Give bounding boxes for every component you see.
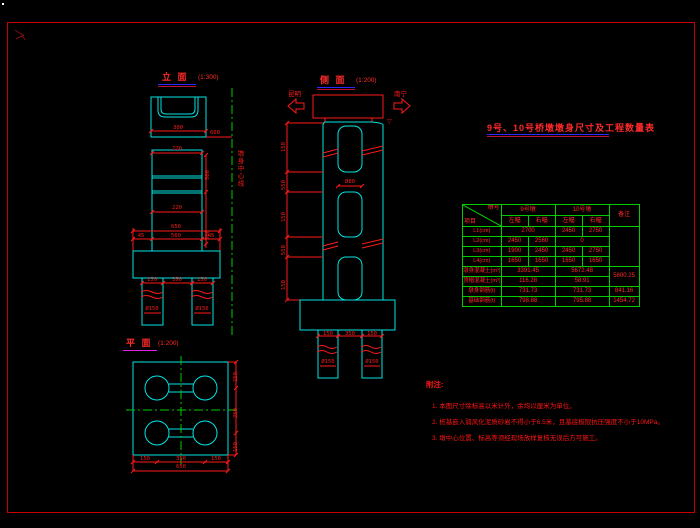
cell: 2450 — [555, 227, 582, 237]
pier10-group-header: 10号墩 — [555, 205, 609, 216]
side-label-underline — [317, 87, 355, 88]
dim-plan-r3: 150 — [233, 442, 239, 452]
cell: 2700 — [501, 227, 555, 237]
note-item-3: 3. 墩中心位置、标高等须经现场放样复核无误后方可施工。 — [432, 432, 602, 442]
elevation-scale-label: (1:300) — [198, 74, 219, 81]
row-label: L3(cm) — [463, 247, 502, 257]
dim-plan-b2: 350 — [176, 456, 186, 462]
cell: 798.88 — [501, 297, 555, 307]
table-row: 基础钢筋(t) 798.88 795.88 1454.72 — [463, 297, 640, 307]
cell: 1900 — [501, 247, 528, 257]
cell: 795.88 — [555, 297, 609, 307]
dim-side-chain4: 550 — [281, 245, 287, 255]
dim-shaft-width: 220 — [172, 146, 182, 152]
dim-side-footing2: 350 — [345, 331, 355, 337]
diag-bottom-label: 项目 — [464, 219, 476, 226]
diag-top-label: 墩号 — [488, 205, 500, 212]
table-row: 墩身混凝土(m³) 3391.45 5672.48 5800.25 — [463, 267, 640, 277]
row-label: 墩身钢筋(t) — [463, 287, 502, 297]
dim-side-chain1: 150 — [281, 142, 287, 152]
dim-plan-r2: 350 — [233, 408, 239, 418]
cell: 731.73 — [501, 287, 555, 297]
notes-title: 附注: — [426, 379, 444, 390]
dim-plan-b3: 150 — [211, 456, 221, 462]
remark-header: 备注 — [609, 205, 639, 227]
cell: 2750 — [582, 227, 609, 237]
cell: 2450 — [501, 237, 528, 247]
note-item-2: 2. 桩基嵌入弱风化泥质砂岩不得小于6.5米，且基底极限抗压强度不小于10MPa… — [432, 416, 664, 426]
remark-cell: 841.16 — [609, 287, 639, 297]
row-label: 基础钢筋(t) — [463, 297, 502, 307]
dim-opening-dia: Ø80 — [345, 179, 355, 185]
dim-shaft-mid: 220 — [172, 205, 182, 211]
remark-cell-empty — [609, 227, 639, 267]
row-label: 墩身混凝土(m³) — [463, 267, 502, 277]
plan-label-underline — [123, 350, 157, 351]
dim-plan-r1: 150 — [233, 372, 239, 382]
dim-pile-seg2: 350 — [172, 277, 182, 283]
subheader-right1: 右幅 — [528, 216, 555, 227]
subheader-right2: 右幅 — [582, 216, 609, 227]
dim-footing-seg1: 45 — [138, 233, 145, 239]
dim-pile-dia-right: Ø150 — [195, 306, 208, 312]
cad-drawing-sheet: 立 面 (1:300) 侧 面 (1:200) 平 面 (1:200) 300 … — [0, 0, 700, 528]
dim-shaft-v1: 500 — [205, 170, 211, 180]
pier9-group-header: 9号墩 — [501, 205, 555, 216]
dim-footing-seg3: 45 — [208, 233, 215, 239]
dim-pile-dia-left: Ø150 — [145, 306, 158, 312]
row-label: 顶帽混凝土(m³) — [463, 277, 502, 287]
table-title-underline — [487, 134, 609, 135]
cell: 2450 — [555, 247, 582, 257]
subheader-left2: 左幅 — [555, 216, 582, 227]
direction-label-right: 南宁 — [394, 91, 407, 97]
dim-pile-seg1: 150 — [147, 277, 157, 283]
row-label: L4(cm) — [463, 257, 502, 267]
cell: 1650 — [501, 257, 528, 267]
table-row: 墩身钢筋(t) 731.73 731.73 841.16 — [463, 287, 640, 297]
side-scale-label: (1:200) — [356, 77, 377, 84]
subheader-left1: 左幅 — [501, 216, 528, 227]
row-label: L2(cm) — [463, 237, 502, 247]
remark-cell: 1454.72 — [609, 297, 639, 307]
cell: 2450 — [528, 247, 555, 257]
cell: 116.28 — [501, 277, 555, 287]
cell: 1650 — [582, 257, 609, 267]
elevation-label-underline — [158, 84, 196, 85]
table-title: 9号、10号桥墩墩身尺寸及工程数量表 — [487, 121, 655, 134]
cell: 1650 — [528, 257, 555, 267]
plan-scale-label: (1:200) — [158, 340, 179, 347]
note-item-1: 1. 本图尺寸除标高以米计外，余均以厘米为单位。 — [432, 400, 576, 410]
elevation-view-label: 立 面 — [162, 70, 189, 83]
table-title-underline2 — [487, 136, 609, 137]
cell: 58.91 — [555, 277, 609, 287]
cell: 2560 — [528, 237, 555, 247]
plan-view-label: 平 面 — [126, 336, 153, 349]
dim-side-footing1: 150 — [323, 331, 333, 337]
dim-footing-seg2: 560 — [171, 233, 181, 239]
cell: 3391.45 — [501, 267, 555, 277]
quantity-table: 墩号 项目 9号墩 10号墩 备注 左幅 右幅 左幅 右幅 L1(cm) 270… — [462, 204, 640, 307]
dim-cap-width: 300 — [173, 125, 183, 131]
dim-side-pile-dia-right: Ø150 — [365, 359, 378, 365]
side-view-label: 侧 面 — [320, 73, 347, 86]
remark-cell: 5800.25 — [609, 267, 639, 287]
direction-label-left: 昆明 — [288, 91, 301, 97]
table-row: L1(cm) 2700 2450 2750 — [463, 227, 640, 237]
dim-footing-total: 650 — [171, 224, 181, 230]
centerline-label: 墩身中心线 — [234, 150, 244, 200]
level-mark: ▽ — [387, 118, 392, 125]
dim-side-footing3: 150 — [367, 331, 377, 337]
dim-plan-b1: 150 — [140, 456, 150, 462]
cell: 0 — [555, 237, 609, 247]
row-label: L1(cm) — [463, 227, 502, 237]
dim-pile-seg3: 150 — [197, 277, 207, 283]
dim-side-pile-dia-left: Ø150 — [321, 359, 334, 365]
dim-side-chain5: 150 — [281, 280, 287, 290]
dim-cap-right: 600 — [210, 130, 220, 136]
cell: 2750 — [582, 247, 609, 257]
dim-plan-total: 650 — [176, 464, 186, 470]
side-label-underline2 — [317, 89, 355, 90]
table-header-row: 墩号 项目 9号墩 10号墩 备注 — [463, 205, 640, 216]
dim-side-chain2: 550 — [281, 180, 287, 190]
cell: 731.73 — [555, 287, 609, 297]
diagonal-header-cell: 墩号 项目 — [463, 205, 502, 227]
cell: 5672.48 — [555, 267, 609, 277]
dim-side-chain3: 150 — [281, 212, 287, 222]
cell: 1650 — [555, 257, 582, 267]
elevation-label-underline2 — [158, 86, 196, 87]
